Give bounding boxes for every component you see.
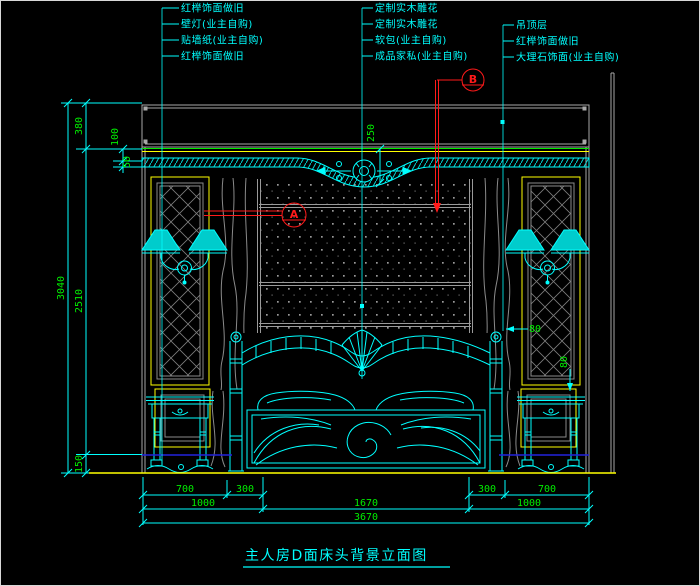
lattice-panel-left bbox=[151, 177, 209, 385]
dim-150: 150 bbox=[74, 455, 85, 473]
right-wall-section bbox=[611, 73, 614, 473]
callout-middle-1: 定制实木雕花 bbox=[375, 2, 438, 15]
dim-1000-left: 1000 bbox=[191, 498, 215, 509]
dims-left: 3040 380 2510 150 100 50 bbox=[56, 99, 142, 477]
dim-80-b: 80 bbox=[559, 356, 570, 368]
dim-300-left: 300 bbox=[236, 484, 254, 495]
callout-middle-3: 软包(业主自购) bbox=[375, 34, 447, 47]
callout-group-middle: 定制实木雕花 定制实木雕花 软包(业主自购) 成品家私(业主自购) bbox=[362, 2, 468, 63]
dim-80-a: 80 bbox=[529, 324, 541, 335]
dim-1670: 1670 bbox=[354, 498, 378, 509]
drawing-title: 主人房D面床头背景立面图 bbox=[245, 548, 428, 564]
callout-middle-4: 成品家私(业主自购) bbox=[375, 50, 468, 63]
dim-50: 50 bbox=[122, 156, 133, 168]
marker-a-letter: A bbox=[290, 208, 299, 221]
drawing-title-block: 主人房D面床头背景立面图 bbox=[243, 548, 450, 567]
lattice-panel-right bbox=[522, 177, 580, 385]
center-ornament bbox=[317, 160, 411, 182]
callout-group-left: 红榉饰面做旧 壁灯(业主自购) 贴墙纸(业主自购) 红榉饰面做旧 bbox=[162, 2, 263, 63]
dims-bottom: 700 300 300 700 1000 1670 1000 3670 bbox=[139, 477, 593, 527]
dim-2510: 2510 bbox=[74, 289, 85, 313]
elevation-drawing: 红榉饰面做旧 壁灯(业主自购) 贴墙纸(业主自购) 红榉饰面做旧 定制实木雕花 … bbox=[1, 1, 700, 586]
dim-380: 380 bbox=[74, 117, 85, 135]
dim-250: 250 bbox=[366, 124, 377, 142]
callout-left-2: 壁灯(业主自购) bbox=[181, 18, 253, 31]
cad-drawing-viewport: 红榉饰面做旧 壁灯(业主自购) 贴墙纸(业主自购) 红榉饰面做旧 定制实木雕花 … bbox=[0, 0, 700, 586]
dim-3670-total: 3670 bbox=[354, 512, 378, 523]
callout-right-1: 吊顶层 bbox=[516, 20, 548, 32]
callout-left-1: 红榉饰面做旧 bbox=[181, 2, 244, 15]
dim-overall-height: 3040 bbox=[56, 276, 67, 300]
callout-left-3: 贴墙纸(业主自购) bbox=[181, 34, 263, 47]
callout-right-2: 红榉饰面做旧 bbox=[516, 35, 579, 48]
dim-1000-right: 1000 bbox=[517, 498, 541, 509]
dim-300-right: 300 bbox=[478, 484, 496, 495]
callout-middle-2: 定制实木雕花 bbox=[375, 18, 438, 31]
dim-100: 100 bbox=[110, 128, 121, 146]
dim-700-right: 700 bbox=[538, 484, 556, 495]
callout-left-4: 红榉饰面做旧 bbox=[181, 50, 244, 63]
callout-right-3: 大理石饰面(业主自购) bbox=[516, 51, 619, 64]
dim-700-left: 700 bbox=[176, 484, 194, 495]
ceiling-trim-lines bbox=[142, 149, 589, 152]
callout-group-right: 吊顶层 红榉饰面做旧 大理石饰面(业主自购) bbox=[503, 20, 619, 64]
marker-b-letter: B bbox=[469, 73, 477, 86]
